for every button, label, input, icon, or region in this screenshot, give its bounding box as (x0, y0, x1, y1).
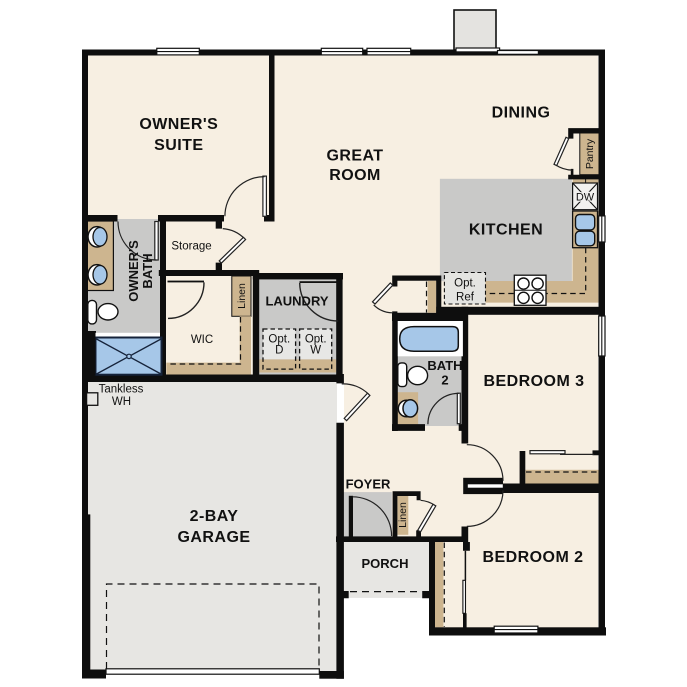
svg-text:W: W (310, 345, 321, 357)
svg-text:2-BAY: 2-BAY (190, 508, 239, 525)
svg-text:Opt.: Opt. (454, 278, 476, 290)
svg-text:Linen: Linen (236, 283, 248, 309)
svg-text:WH: WH (112, 396, 131, 408)
svg-text:BATH: BATH (140, 253, 155, 288)
svg-text:Linen: Linen (397, 502, 409, 528)
svg-text:Pantry: Pantry (584, 138, 596, 169)
svg-text:Tankless: Tankless (99, 384, 144, 396)
svg-text:D: D (275, 345, 283, 357)
svg-text:Ref: Ref (456, 292, 475, 304)
svg-text:OWNER'S: OWNER'S (139, 116, 218, 133)
svg-text:GREAT: GREAT (326, 148, 383, 165)
svg-text:BEDROOM 3: BEDROOM 3 (484, 373, 585, 390)
svg-text:FOYER: FOYER (346, 477, 391, 492)
svg-text:DINING: DINING (492, 105, 551, 122)
svg-text:PORCH: PORCH (362, 556, 409, 571)
svg-text:WIC: WIC (191, 334, 213, 346)
svg-text:2: 2 (441, 373, 448, 388)
svg-text:GARAGE: GARAGE (178, 529, 251, 546)
svg-text:ROOM: ROOM (329, 167, 381, 184)
svg-text:LAUNDRY: LAUNDRY (265, 294, 328, 309)
svg-text:Storage: Storage (171, 241, 211, 253)
svg-text:SUITE: SUITE (154, 137, 203, 154)
svg-text:BATH: BATH (427, 358, 462, 373)
svg-text:KITCHEN: KITCHEN (469, 222, 543, 239)
svg-text:DW: DW (576, 192, 595, 204)
svg-text:BEDROOM 2: BEDROOM 2 (483, 549, 584, 566)
svg-text:OWNER'S: OWNER'S (126, 240, 141, 302)
